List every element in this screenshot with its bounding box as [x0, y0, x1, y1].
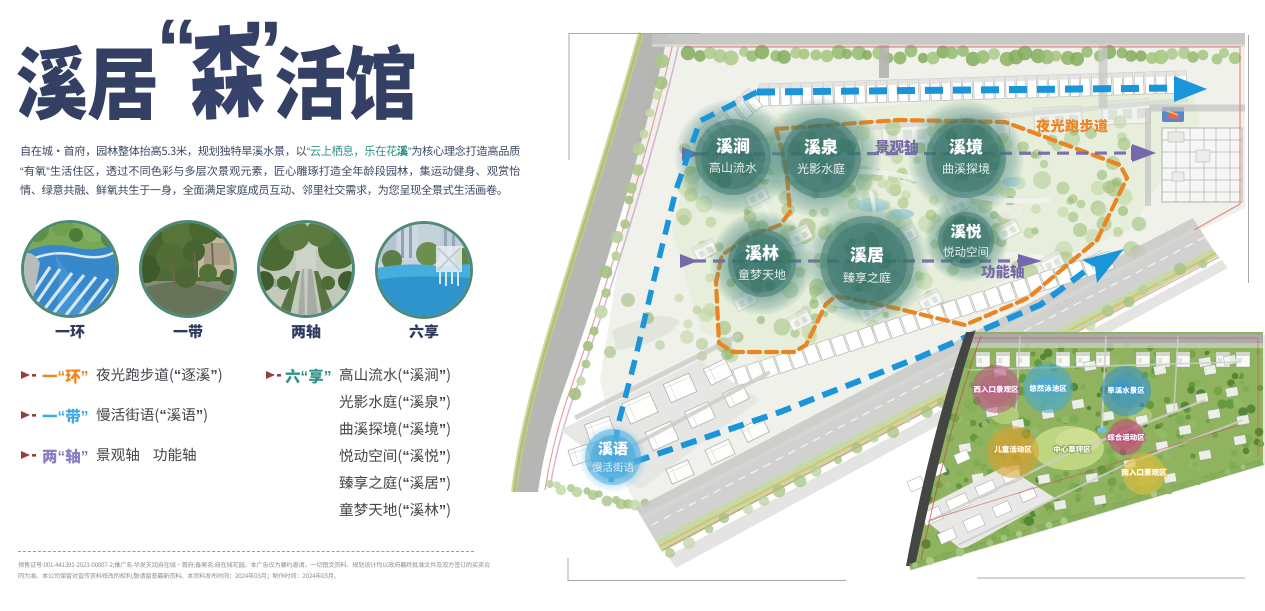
svg-text:综合运动区: 综合运动区 [1107, 432, 1145, 443]
svg-text:南入口景观区: 南入口景观区 [1122, 467, 1167, 478]
svg-text:溪语: 溪语 [598, 438, 628, 459]
svg-text:溪涧: 溪涧 [716, 132, 750, 157]
svg-text:溪林: 溪林 [745, 239, 779, 264]
svg-text:臻享之庭: 臻享之庭 [843, 269, 891, 286]
svg-text:溪悦: 溪悦 [950, 220, 982, 242]
svg-text:高山流水: 高山流水 [709, 159, 757, 176]
svg-text:悦动空间: 悦动空间 [943, 244, 989, 260]
svg-text:中心草坪区: 中心草坪区 [1053, 444, 1091, 455]
svg-text:曲溪探境: 曲溪探境 [942, 160, 990, 177]
svg-text:西入口景观区: 西入口景观区 [974, 384, 1019, 395]
svg-text:悠然泳池区: 悠然泳池区 [1029, 383, 1067, 394]
svg-text:旱溪水景区: 旱溪水景区 [1107, 385, 1145, 396]
svg-text:儿童活动区: 儿童活动区 [994, 444, 1032, 455]
svg-text:溪居: 溪居 [850, 241, 884, 266]
svg-text:溪境: 溪境 [949, 133, 983, 158]
svg-text:夜光跑步道: 夜光跑步道 [1036, 116, 1109, 136]
svg-text:溪泉: 溪泉 [804, 133, 838, 158]
svg-text:童梦天地: 童梦天地 [738, 266, 786, 283]
svg-text:光影水庭: 光影水庭 [797, 160, 845, 177]
svg-text:慢活街语: 慢活街语 [592, 460, 634, 475]
